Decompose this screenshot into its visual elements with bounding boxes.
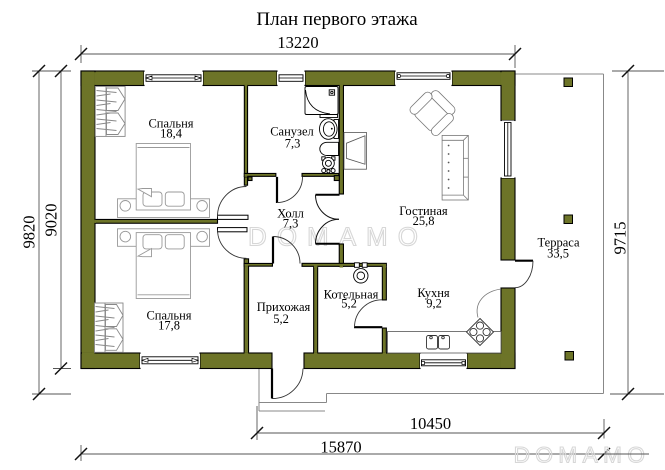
svg-text:9820: 9820 [20, 216, 39, 249]
svg-text:18,4: 18,4 [160, 127, 183, 141]
svg-text:9,2: 9,2 [426, 297, 442, 311]
svg-text:7,3: 7,3 [283, 217, 299, 231]
svg-text:5,2: 5,2 [273, 312, 289, 326]
svg-text:15870: 15870 [320, 438, 361, 457]
svg-text:План первого этажа: План первого этажа [256, 9, 418, 30]
svg-text:10450: 10450 [410, 414, 451, 433]
svg-text:13220: 13220 [277, 33, 318, 52]
svg-text:5,2: 5,2 [341, 297, 357, 311]
svg-text:7,3: 7,3 [285, 137, 301, 151]
svg-text:9020: 9020 [42, 204, 61, 237]
svg-text:DOMAMO: DOMAMO [514, 442, 651, 467]
svg-text:9715: 9715 [611, 222, 630, 255]
svg-text:17,8: 17,8 [158, 319, 180, 333]
svg-text:25,8: 25,8 [413, 214, 435, 228]
svg-text:33,5: 33,5 [547, 247, 569, 261]
